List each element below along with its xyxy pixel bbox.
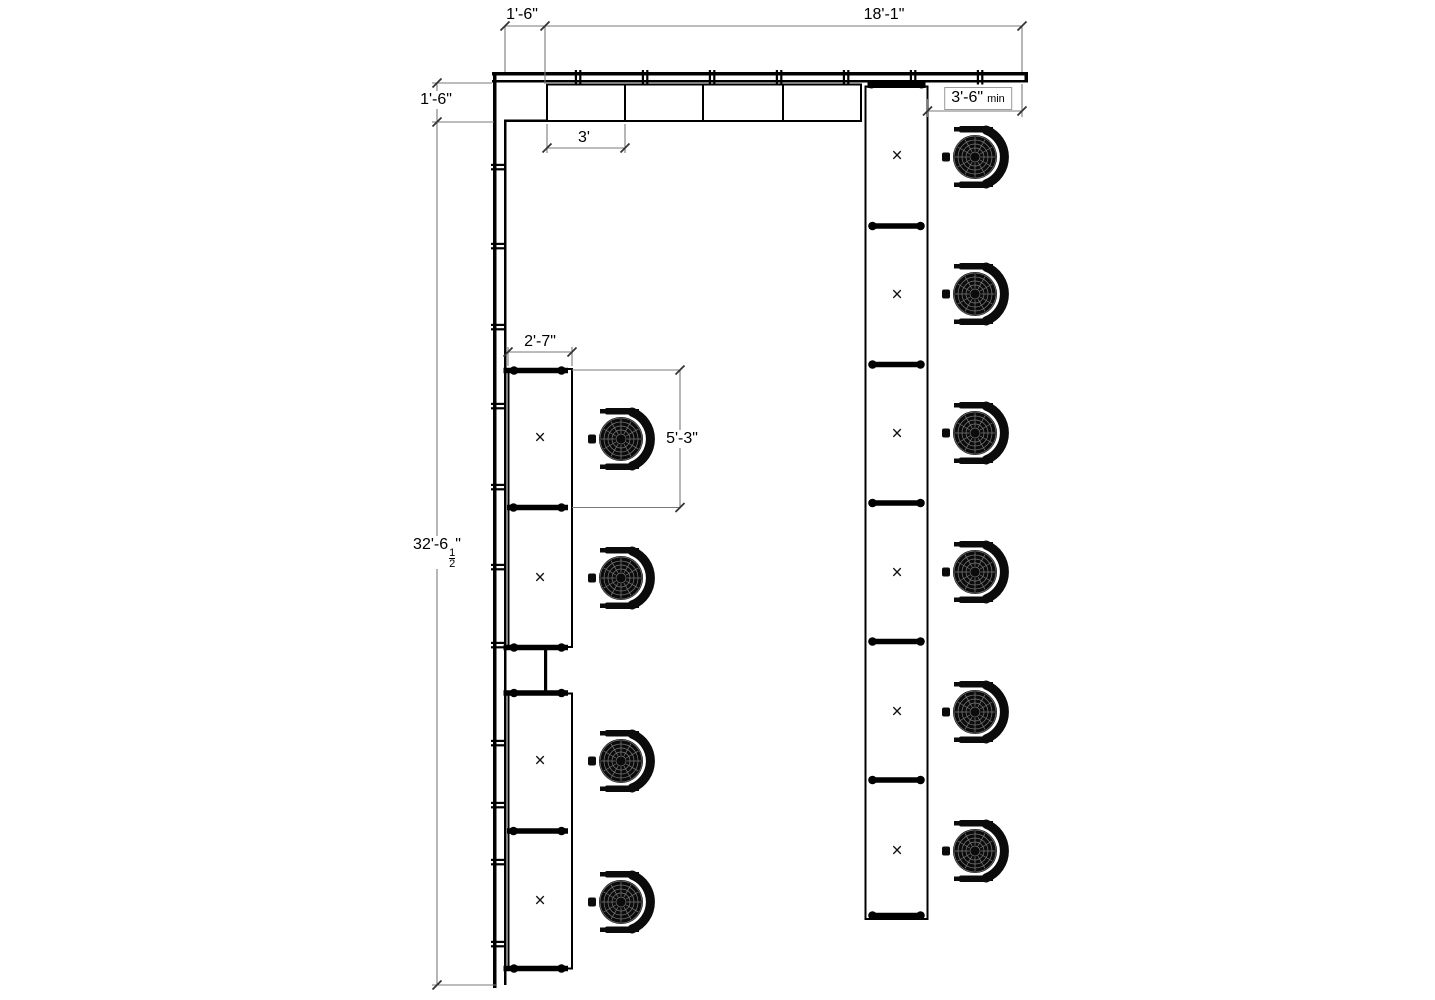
connector-panel — [544, 649, 547, 692]
dim-clearance-label: 3'-6"min — [944, 87, 1012, 110]
floor-plan-drawing: × × × × × × × × × × — [0, 0, 1435, 1000]
office-chair-icon — [942, 820, 1004, 882]
left-window-wall — [491, 72, 507, 988]
dim-cabinet-module-label: 3' — [578, 129, 590, 147]
workstation-x-marker: × — [534, 428, 545, 449]
office-chair-icon — [588, 547, 650, 609]
dim-left-span-unit: " — [455, 536, 461, 553]
upper-cabinet-run — [504, 85, 861, 123]
workstation-x-marker: × — [891, 424, 902, 445]
office-chair-icon — [942, 402, 1004, 464]
workstation-x-marker: × — [534, 568, 545, 589]
workstation-x-marker: × — [534, 891, 545, 912]
workstation-x-marker: × — [891, 285, 902, 306]
dim-left-span-whole: 32'-6 — [413, 536, 448, 553]
workstation-x-marker: × — [891, 563, 902, 584]
office-chair-icon — [588, 408, 650, 470]
dim-pitch-label: 5'-3" — [663, 430, 701, 448]
left-lower-workstation-group — [504, 689, 573, 973]
cabinet — [625, 85, 703, 122]
dim-left-offset-label: 1'-6" — [417, 91, 455, 109]
dim-desk-width-label: 2'-7" — [524, 333, 556, 351]
office-chair-icon — [588, 730, 650, 792]
dim-clearance-qualifier: min — [987, 93, 1005, 105]
workstation-x-marker: × — [891, 841, 902, 862]
dim-left-span-label: 32'-612" — [410, 536, 464, 569]
top-window-wall — [492, 70, 1028, 85]
workstation-x-marker: × — [891, 702, 902, 723]
office-chair-icon — [942, 541, 1004, 603]
office-chair-icon — [942, 126, 1004, 188]
panel-end-cap — [868, 81, 926, 89]
office-chair-icon — [588, 871, 650, 933]
workstation-x-markers: × × × × × × × × × × — [534, 146, 902, 912]
left-upper-workstation-group — [504, 366, 573, 652]
cabinet — [703, 85, 783, 122]
dim-top-span-label: 18'-1" — [864, 6, 905, 24]
workstation-x-marker: × — [534, 751, 545, 772]
workstation-x-marker: × — [891, 146, 902, 167]
dim-top-offset-label: 1'-6" — [506, 6, 538, 24]
cabinet — [547, 85, 625, 122]
office-chair-icon — [942, 681, 1004, 743]
dim-clearance-value: 3'-6" — [951, 89, 983, 106]
floor-plan-canvas: × × × × × × × × × × 1'-6" 18'-1" 1'-6" 3… — [0, 0, 1435, 1000]
cabinet — [783, 85, 861, 122]
right-workstation-column — [866, 81, 928, 920]
office-chair-icon — [942, 263, 1004, 325]
office-chairs — [588, 126, 1004, 933]
